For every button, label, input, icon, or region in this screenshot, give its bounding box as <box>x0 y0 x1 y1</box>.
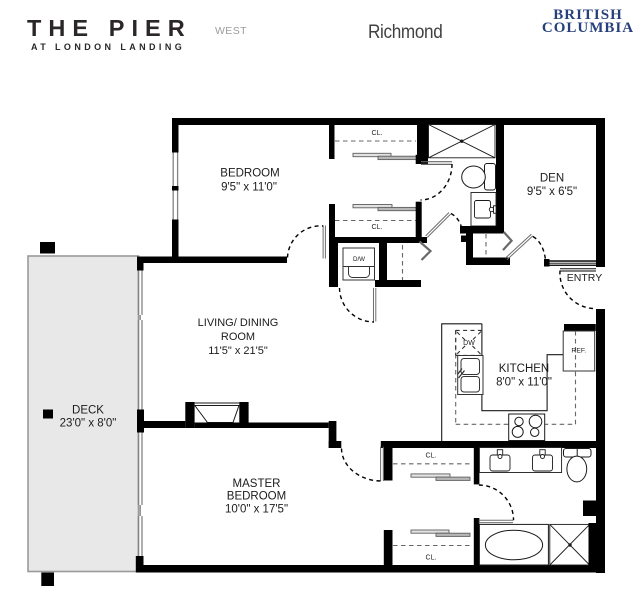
svg-text:10'0" x 17'5": 10'0" x 17'5" <box>225 504 288 516</box>
svg-text:BEDROOM: BEDROOM <box>227 491 286 503</box>
svg-text:D/W: D/W <box>353 256 365 263</box>
svg-text:CL.: CL. <box>372 130 383 137</box>
svg-text:KITCHEN: KITCHEN <box>499 363 549 375</box>
svg-text:BEDROOM: BEDROOM <box>220 168 279 180</box>
svg-text:CL.: CL. <box>426 555 437 562</box>
svg-text:ROOM: ROOM <box>221 331 255 343</box>
svg-text:DW: DW <box>463 340 475 347</box>
svg-text:9'5" x 11'0": 9'5" x 11'0" <box>221 182 277 194</box>
svg-text:CL.: CL. <box>372 224 383 231</box>
svg-text:8'0" x 11'0": 8'0" x 11'0" <box>496 377 552 389</box>
svg-text:MASTER: MASTER <box>233 478 281 490</box>
svg-text:9'5" x 6'5": 9'5" x 6'5" <box>527 186 577 198</box>
svg-text:LIVING/ DINING: LIVING/ DINING <box>198 317 279 329</box>
svg-text:23'0" x 8'0": 23'0" x 8'0" <box>60 418 117 430</box>
svg-text:ENTRY: ENTRY <box>567 272 602 284</box>
svg-text:DEN: DEN <box>540 173 564 185</box>
svg-text:CL.: CL. <box>426 453 437 460</box>
svg-text:11'5" x 21'5": 11'5" x 21'5" <box>208 345 268 357</box>
svg-text:REF.: REF. <box>571 348 586 355</box>
svg-text:DECK: DECK <box>72 405 104 417</box>
